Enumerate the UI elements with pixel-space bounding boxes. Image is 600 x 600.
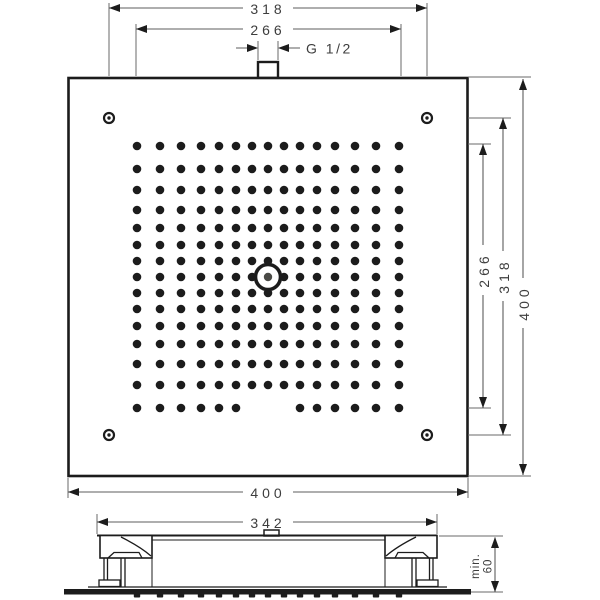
side-view (64, 530, 471, 598)
mounting-screw (422, 113, 432, 123)
dim-right-266-label: 266 (476, 252, 492, 287)
dim-60-label: 60 (483, 559, 495, 574)
mounting-screw (104, 113, 114, 123)
dim-bottom-400-label: 400 (250, 485, 285, 501)
right-mounting-bracket (385, 536, 438, 588)
dim-side-342-label: 342 (250, 515, 285, 531)
dim-right-400-label: 400 (516, 285, 532, 320)
top-view (69, 62, 468, 476)
dim-top-266-label: 266 (250, 22, 285, 38)
dimension-connector-g12: G 1/2 (236, 41, 353, 61)
center-nozzle (256, 265, 281, 290)
dimension-min-60: min. 60 (439, 536, 503, 592)
dim-right-318-label: 318 (496, 258, 512, 293)
dim-min-label: min. (470, 553, 482, 579)
inlet-connector (258, 62, 278, 78)
mounting-screw (422, 430, 432, 440)
left-mounting-bracket (99, 536, 152, 588)
connector-size-label: G 1/2 (306, 41, 353, 57)
dimension-bottom-400: 400 (68, 478, 468, 501)
shower-head-technical-drawing: 318 266 G 1/2 266 318 (0, 0, 600, 600)
mounting-screw (104, 430, 114, 440)
dim-top-318-label: 318 (250, 1, 285, 17)
dimension-right-266: 266 (468, 144, 492, 408)
technical-drawing-page: 318 266 G 1/2 266 318 (0, 0, 600, 600)
